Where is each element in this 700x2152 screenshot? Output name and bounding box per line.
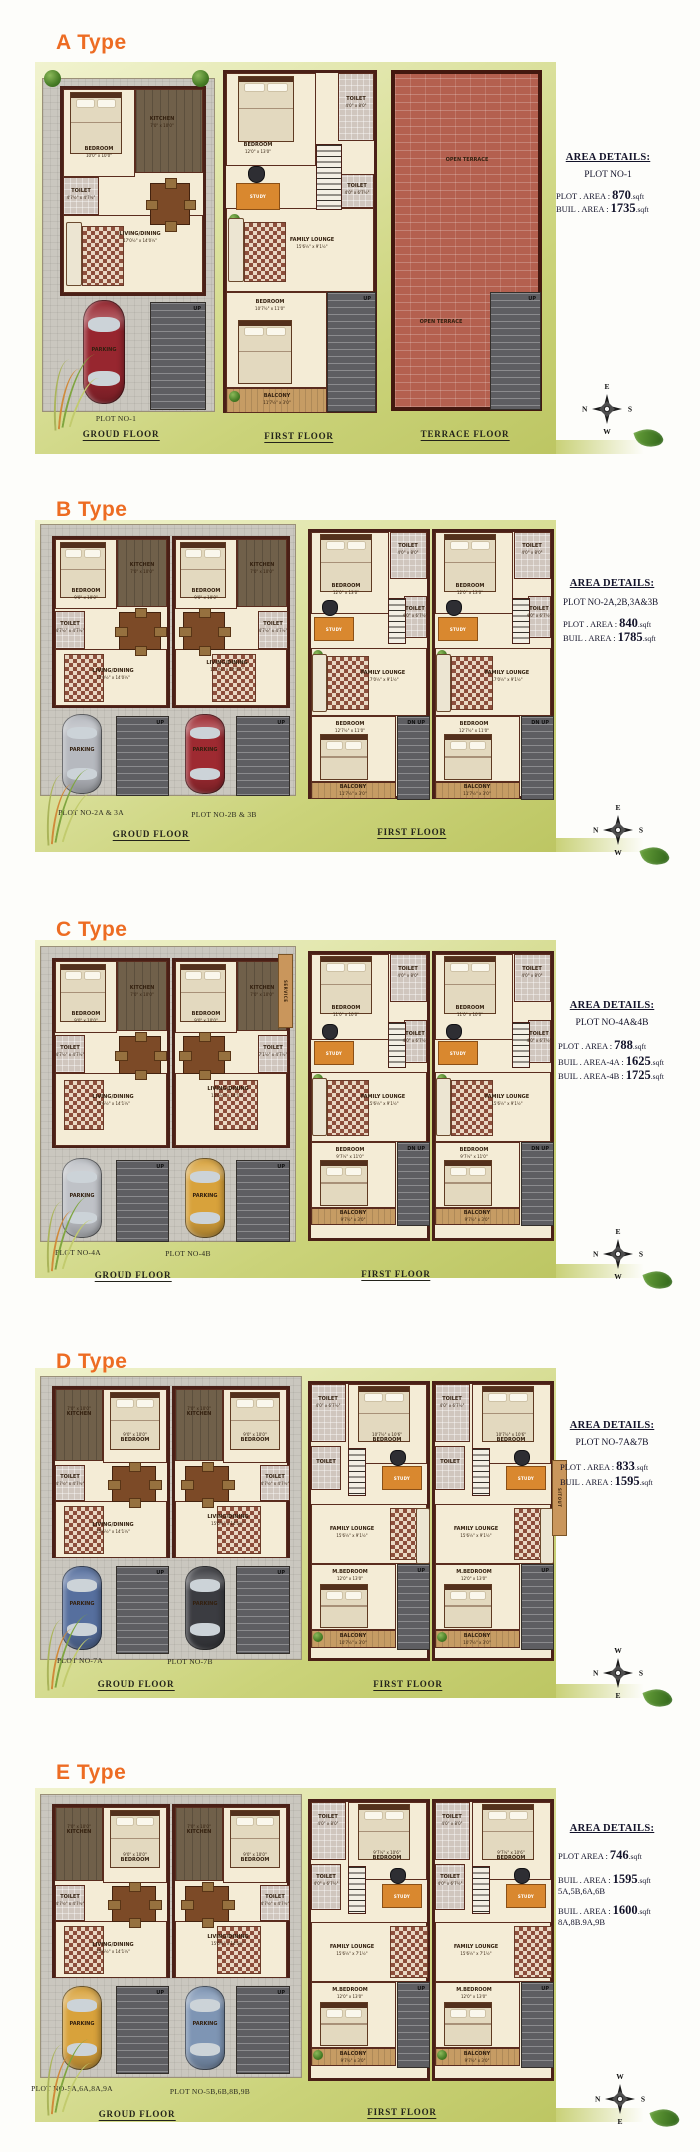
stairs-direction-label: UP — [277, 1570, 285, 1576]
room-name: BEDROOM — [241, 1437, 270, 1444]
room-name: LIVING/DINING — [92, 1942, 133, 1949]
headboard — [321, 535, 371, 540]
pillow — [346, 1168, 362, 1175]
stair-core-icon — [388, 598, 406, 644]
room-dimensions: 9'0" x 10'0" — [72, 595, 101, 600]
sofa-icon — [436, 1078, 451, 1136]
stairs-icon: DN UP — [521, 1142, 554, 1226]
stairs-direction-label: UP — [156, 1990, 164, 1996]
area-row-label: BUIL . AREA : — [558, 1875, 611, 1885]
d-type-title: D Type — [56, 1350, 127, 1374]
stairs-direction-label: UP — [541, 1568, 549, 1574]
blanket-fold — [321, 2023, 367, 2025]
plant-icon — [437, 1632, 447, 1642]
room-dimensions: 4'7½" x 4'7½" — [56, 1052, 85, 1057]
plant-icon — [313, 1632, 323, 1642]
a-type-first-floor-label: FIRST FLOOR — [264, 431, 333, 443]
chair-icon — [165, 178, 177, 189]
living-dining-label: LIVING/DINING17'0½" x 14'0½" — [206, 660, 247, 672]
rug-icon — [244, 222, 286, 282]
e-type-first-floor-label: FIRST FLOOR — [367, 2107, 436, 2119]
room-dimensions: 7'1½" x 4'7½" — [259, 1052, 288, 1057]
stairs-icon: UP — [397, 1982, 430, 2068]
blanket-fold — [445, 1182, 491, 1184]
toilet-label: TOILET4'0" x 6'7½" — [403, 1031, 428, 1043]
headboard — [321, 735, 367, 740]
dining-table-icon — [112, 1886, 156, 1922]
pillow — [186, 972, 201, 979]
stairs-icon: UP — [116, 1566, 169, 1654]
compass-t: E — [615, 1227, 620, 1236]
floor-plan-brochure: A TypeBEDROOM10'0" x 10'0"KITCHEN7'0" x … — [0, 0, 700, 2152]
room-name: OPEN TERRACE — [446, 157, 489, 164]
compass-t: E — [615, 803, 620, 812]
toilet — [514, 954, 551, 1002]
area-row-label: PLOT . AREA : — [556, 191, 610, 201]
pillow — [472, 542, 489, 549]
stairs-direction-label: UP — [277, 720, 285, 726]
stairs-direction-label: DN UP — [531, 720, 549, 726]
room-name: LIVING/DINING — [119, 231, 160, 238]
room-name: BALCONY — [339, 1633, 366, 1640]
blanket-fold — [239, 108, 293, 110]
room-dimensions: 4'0" x 8'0" — [346, 103, 367, 108]
parking-label: PARKING — [193, 2021, 218, 2028]
room-dimensions: 4'7½" x 4'7½" — [56, 628, 85, 633]
d-type-first-floor-label: FIRST FLOOR — [373, 1679, 442, 1691]
dining-table-icon — [185, 1466, 229, 1502]
m-bedroom-label: M.BEDROOM12'0" x 13'0" — [456, 1569, 492, 1581]
room-name: PARKING — [193, 2021, 218, 2028]
pillow — [365, 1812, 382, 1819]
pillow — [472, 964, 489, 971]
pillow — [257, 1818, 273, 1825]
area-row-value: 1735 — [611, 201, 636, 215]
stairs-icon: UP — [490, 292, 541, 410]
chair-icon — [181, 1900, 194, 1909]
compass-l: N — [595, 2095, 600, 2104]
room-dimensions: 15'6½" x 9'1½" — [361, 1101, 405, 1106]
room-name: FAMILY LOUNGE — [330, 1526, 374, 1533]
toilet-label: TOILET4'7½" x 4'7½" — [67, 188, 96, 200]
chair-icon — [179, 1051, 191, 1061]
c-type-plot-no-4b-label: PLOT NO-4B — [165, 1249, 211, 1258]
room-name: BEDROOM — [241, 1857, 270, 1864]
plant-icon — [229, 391, 240, 402]
stairs-icon: UP — [327, 292, 376, 412]
headboard — [111, 1393, 159, 1398]
room-name: PARKING — [193, 1193, 218, 1200]
study-label: STUDY — [383, 1467, 421, 1489]
room-dimensions: 9'7½" x 3'0" — [340, 2058, 367, 2063]
pillow — [386, 1812, 403, 1819]
room-name: PARKING — [193, 747, 218, 754]
stair-core-icon — [472, 1448, 490, 1496]
chair-icon — [129, 1882, 142, 1891]
stairs-direction-label: UP — [156, 720, 164, 726]
room-dimensions: 4'0" x 6'7½" — [440, 1403, 465, 1408]
stairs-direction-label: UP — [277, 1990, 285, 1996]
room-name: LIVING/DINING — [207, 1514, 248, 1521]
study-label: STUDY — [237, 184, 279, 209]
room-name: PARKING — [92, 347, 117, 354]
headboard — [71, 93, 121, 98]
headboard — [321, 1161, 367, 1166]
room-name: BEDROOM — [121, 1857, 150, 1864]
room-dimensions: 17'0½" x 14'0½" — [206, 667, 247, 672]
chair-icon — [222, 1900, 235, 1909]
b-type-first-floor-label: FIRST FLOOR — [377, 827, 446, 839]
room-name: TOILET — [440, 1396, 465, 1403]
chair-icon — [154, 627, 166, 637]
room-dimensions: 15'6½" x 7'1½" — [454, 1951, 498, 1956]
room-name: M.BEDROOM — [332, 1987, 368, 1994]
compass-rose-icon: ESWN — [582, 384, 632, 434]
kitchen-label: KITCHEN7'0" x 10'0" — [250, 562, 275, 574]
family-lounge-label: FAMILY LOUNGE15'6½" x 9'1½" — [485, 1094, 529, 1106]
living-dining-label: LIVING/DINING15'6½" x 14'1½" — [92, 1522, 133, 1534]
room-dimensions: 17'0½" x 14'0½" — [119, 238, 160, 243]
room-name: PARKING — [70, 1601, 95, 1608]
chair-icon — [202, 1462, 215, 1471]
study-label: STUDY — [383, 1885, 421, 1907]
area-row-value: 788 — [614, 1038, 633, 1052]
toilet-label: TOILET4'7½" x 4'7½" — [56, 1045, 85, 1057]
room-dimensions: 11'0" x 10'0" — [456, 1012, 485, 1017]
room-name: FAMILY LOUNGE — [361, 670, 405, 677]
chair-icon — [108, 1480, 121, 1489]
sofa-icon — [416, 1508, 430, 1564]
blanket-fold — [445, 562, 495, 564]
pillow — [137, 1400, 153, 1407]
blanket-fold — [321, 1605, 367, 1607]
stairs-icon: UP — [397, 1564, 430, 1650]
room-name: LIVING/DINING — [206, 660, 247, 667]
room-dimensions: 11'7½" x 3'0" — [463, 791, 490, 796]
room-name: TOILET — [314, 1874, 339, 1881]
e-type-area-note: 8A,8B.9A,9B — [558, 1917, 605, 1927]
m-bedroom-label: M.BEDROOM12'0" x 13'0" — [332, 1987, 368, 1999]
area-row-value: 1625 — [626, 1054, 651, 1068]
family-lounge-label: FAMILY LOUNGE15'6½" x 9'1½" — [454, 1526, 498, 1538]
area-row-unit: .sqft — [636, 205, 649, 214]
toilet — [514, 532, 551, 579]
room-name: PARKING — [193, 1601, 218, 1608]
blanket-fold — [321, 1182, 367, 1184]
compass-b: W — [614, 848, 622, 857]
bedroom-label: 9'7½" x 10'6"BEDROOM — [373, 1850, 402, 1862]
stairs-direction-label: UP — [417, 1568, 425, 1574]
blanket-fold — [239, 351, 291, 353]
open-terrace-label: OPEN TERRACE — [446, 157, 489, 164]
tree-icon — [192, 70, 209, 87]
windshield — [88, 317, 120, 333]
room-name: KITCHEN — [187, 1829, 212, 1836]
room-name: BALCONY — [340, 1210, 367, 1217]
m-bedroom-label: M.BEDROOM12'0" x 13'0" — [456, 1987, 492, 1999]
area-row-unit: .sqft — [638, 620, 651, 629]
stairs-direction-label: UP — [277, 1164, 285, 1170]
toilet-label: TOILET4'7½" x 4'7½" — [56, 1474, 85, 1486]
room-dimensions: 9'0" x 10'0" — [192, 595, 221, 600]
car-icon — [185, 1566, 225, 1650]
family-lounge-label: FAMILY LOUNGE17'0½" x 9'1½" — [485, 670, 529, 682]
room-dimensions: 4'0" x 6'7½" — [314, 1881, 339, 1886]
room-name: FAMILY LOUNGE — [485, 670, 529, 677]
toilet — [435, 1802, 470, 1860]
c-type-area-details-heading: AREA DETAILS: — [570, 1000, 655, 1011]
room-name: PARKING — [70, 1193, 95, 1200]
blanket-fold — [321, 984, 371, 986]
kitchen — [175, 1389, 223, 1461]
d-type-area-row: PLOT . AREA :833.sqft — [560, 1459, 648, 1474]
compass-r: S — [641, 2095, 645, 2104]
room-dimensions: 9'7½" x 11'0" — [336, 1154, 365, 1159]
room-name: PARKING — [70, 747, 95, 754]
a-type-title: A Type — [56, 31, 127, 55]
stairs-direction-label: UP — [193, 306, 201, 312]
room-name: BEDROOM — [456, 583, 485, 590]
study-desk-icon: STUDY — [382, 1884, 422, 1908]
room-name: LIVING/DINING — [207, 1934, 248, 1941]
rear-window — [190, 2043, 220, 2056]
d-type-plot-no-line: PLOT NO-7A&7B — [576, 1438, 649, 1448]
compass-b: W — [614, 1272, 622, 1281]
compass-l: N — [582, 405, 587, 414]
room-dimensions: 15'6½" x 7'1½" — [330, 1951, 374, 1956]
m-bedroom-label: M.BEDROOM12'0" x 13'0" — [332, 1569, 368, 1581]
chair-icon — [135, 608, 147, 618]
area-row-label: PLOT . AREA : — [558, 1041, 612, 1051]
room-dimensions: 10'7½" x 3'0" — [339, 1640, 366, 1645]
windshield — [190, 1579, 220, 1592]
stairs-icon: DN UP — [397, 1142, 430, 1226]
room-dimensions: 4'0" x 8'0" — [398, 973, 419, 978]
pillow — [489, 1812, 506, 1819]
e-type-area-row: PLOT AREA :746.sqft — [558, 1848, 642, 1863]
pillow — [77, 100, 94, 107]
room-name: BEDROOM — [372, 1437, 402, 1444]
room-name: TOILET — [316, 1396, 341, 1403]
chair-icon — [146, 200, 158, 211]
pillow — [346, 2010, 362, 2017]
compass-r: S — [628, 405, 632, 414]
stair-core-icon — [388, 1022, 406, 1068]
pillow — [470, 2010, 486, 2017]
bed-icon — [320, 2002, 368, 2046]
parking-label: PARKING — [193, 747, 218, 754]
d-type-area-row: BUIL . AREA :1595.sqft — [560, 1474, 653, 1489]
room-dimensions: 10'0" x 10'0" — [85, 153, 114, 158]
room-dimensions: 4'7½" x 4'7½" — [261, 1481, 290, 1486]
pillow — [137, 1818, 153, 1825]
chair-icon — [108, 1900, 121, 1909]
rug-icon — [327, 1080, 369, 1136]
a-type-terrace-floor-label: TERRACE FLOOR — [421, 429, 510, 441]
pillow — [237, 1818, 253, 1825]
bedroom-label: BEDROOM12'0" x 13'0" — [244, 142, 273, 154]
parking-label: PARKING — [70, 2021, 95, 2028]
pillow — [346, 742, 362, 749]
room-dimensions: 12'0" x 13'0" — [456, 590, 485, 595]
toilet — [390, 532, 427, 579]
rug-icon — [327, 656, 369, 710]
pillow — [85, 550, 100, 557]
toilet-label: TOILET4'0" x 8'0" — [398, 966, 419, 978]
toilet — [435, 1384, 470, 1442]
grass-decoration-icon — [45, 765, 95, 845]
balcony-label: BALCONY11'7½" x 3'0" — [339, 784, 366, 796]
kitchen-label: KITCHEN7'0" x 10'0" — [130, 562, 155, 574]
area-row-unit: .sqft — [638, 1876, 651, 1885]
stair-core-icon — [512, 598, 530, 644]
room-dimensions: 9'0" x 10'0" — [72, 1018, 101, 1023]
room-name: TOILET — [398, 966, 419, 973]
room-name: KITCHEN — [130, 985, 155, 992]
study-desk-icon: STUDY — [314, 1041, 354, 1065]
headboard — [445, 1161, 491, 1166]
toilet — [311, 1864, 341, 1910]
rug-icon — [514, 1926, 552, 1978]
headboard — [321, 2003, 367, 2008]
windshield — [67, 727, 97, 739]
compass-rose-icon: WSEN — [595, 2074, 645, 2124]
room-name: LIVING/DINING — [92, 1522, 133, 1529]
sofa-icon — [436, 654, 451, 712]
toilet-label: TOILET4'7½" x 4'7½" — [56, 621, 85, 633]
chair-icon — [179, 627, 191, 637]
bed-icon — [444, 2002, 492, 2046]
c-type-first-floor-label: FIRST FLOOR — [361, 1269, 430, 1281]
stairs-icon: UP — [116, 716, 169, 796]
room-name: BALCONY — [263, 393, 290, 400]
toilet-label: TOILET4'0" x 8'0" — [398, 543, 419, 555]
bedroom-label: BEDROOM9'7½" x 11'0" — [336, 1147, 365, 1159]
car-icon — [185, 714, 225, 794]
d-type-area-details-heading: AREA DETAILS: — [570, 1420, 655, 1431]
b-type-area-note: PLOT NO-2A,2B,3A&3B — [563, 597, 658, 607]
kitchen-label: 7'0" x 10'0"KITCHEN — [187, 1406, 212, 1418]
headboard — [445, 1585, 491, 1590]
area-row-unit: .sqft — [651, 1072, 664, 1081]
service-label: SERVICE — [279, 955, 292, 1027]
chair-icon — [154, 1051, 166, 1061]
blanket-fold — [321, 562, 371, 564]
c-type-area-row: BUIL . AREA-4A :1625.sqft — [558, 1054, 664, 1069]
room-dimensions: 15'6½" x 14'1½" — [92, 1101, 133, 1106]
bedroom-label: BEDROOM10'0" x 10'0" — [85, 146, 114, 158]
toilet-label: TOILET4'0" x 6'7½" — [440, 1396, 465, 1408]
balcony-label: BALCONY9'7½" x 3'0" — [464, 2051, 491, 2063]
stairs-icon: UP — [236, 1986, 290, 2074]
chair-icon — [202, 1918, 215, 1927]
room-name: BEDROOM — [336, 1147, 365, 1154]
toilet — [311, 1446, 341, 1490]
toilet-label: TOILET4'0" x 8'0" — [346, 96, 367, 108]
room-name: TOILET — [440, 1459, 460, 1466]
kitchen-label: KITCHEN7'0" x 10'0" — [150, 116, 175, 128]
area-row-label: BUIL . AREA-4B : — [558, 1071, 624, 1081]
room-name: FAMILY LOUNGE — [290, 237, 334, 244]
sofa-icon — [312, 1078, 327, 1136]
room-name: BEDROOM — [121, 1437, 150, 1444]
room-dimensions: 9'7½" x 3'0" — [464, 2058, 491, 2063]
pillow — [327, 1168, 343, 1175]
area-row-value: 1785 — [618, 630, 643, 644]
bed-icon — [70, 92, 122, 154]
bedroom-label: BEDROOM11'0" x 10'0" — [332, 1005, 361, 1017]
compass-l: N — [593, 1669, 598, 1678]
room-dimensions: 7'0" x 10'0" — [250, 569, 275, 574]
room-name: BEDROOM — [459, 721, 489, 728]
room-dimensions: 9'7½" x 3'0" — [340, 1217, 367, 1222]
pillow — [85, 972, 100, 979]
pillow — [327, 1592, 343, 1599]
kitchen — [55, 1389, 103, 1461]
compass-b: E — [617, 2117, 622, 2126]
headboard — [445, 535, 495, 540]
room-name: BALCONY — [340, 2051, 367, 2058]
dining-table-icon — [119, 612, 161, 650]
chair-icon — [202, 1498, 215, 1507]
bedroom-label: BEDROOM11'0" x 10'0" — [456, 1005, 485, 1017]
room-name: LIVING/DINING — [207, 1086, 248, 1093]
bed-icon — [238, 76, 294, 142]
room-name: KITCHEN — [67, 1411, 92, 1418]
room-name: TOILET — [316, 1459, 336, 1466]
study-desk-icon: STUDY — [506, 1884, 546, 1908]
chair-icon — [115, 627, 127, 637]
pillow — [245, 84, 263, 91]
area-row-value: 833 — [616, 1459, 635, 1473]
pillow — [327, 742, 343, 749]
study-desk-icon: STUDY — [236, 183, 280, 210]
blanket-fold — [61, 569, 105, 571]
toilet-label: TOILET4'7½" x 4'7½" — [259, 621, 288, 633]
pillow — [66, 972, 81, 979]
chair-icon — [184, 200, 196, 211]
chair-icon — [218, 627, 230, 637]
pillow — [451, 742, 467, 749]
b-type-title: B Type — [56, 498, 127, 522]
pillow — [510, 1812, 527, 1819]
c-type-area-row: BUIL . AREA-4B :1725.sqft — [558, 1068, 664, 1083]
parking-label: PARKING — [70, 747, 95, 754]
stair-core-icon — [316, 144, 342, 210]
stairs-direction-label: UP — [541, 1986, 549, 1992]
room-dimensions: 10'7½" x 11'0" — [255, 306, 285, 311]
study-desk-icon: STUDY — [438, 1041, 478, 1065]
pillow — [365, 1394, 382, 1401]
headboard — [61, 543, 105, 548]
blanket-fold — [359, 1413, 409, 1415]
a-type-area-details-heading: AREA DETAILS: — [566, 152, 651, 163]
room-name: KITCHEN — [250, 562, 275, 569]
stairs-icon: UP — [236, 1160, 290, 1242]
room-name: OPEN TERRACE — [420, 319, 463, 326]
blanket-fold — [181, 992, 225, 994]
e-type-area-details-heading: AREA DETAILS: — [570, 1823, 655, 1834]
bedroom-label: BEDROOM9'7½" x 11'0" — [460, 1147, 489, 1159]
study-label: STUDY — [439, 1042, 477, 1064]
bedroom-label: 10'7½" x 10'6"BEDROOM — [372, 1432, 402, 1444]
family-lounge-label: FAMILY LOUNGE17'0½" x 9'1½" — [361, 670, 405, 682]
toilet — [311, 1384, 346, 1442]
room-dimensions: 15'6½" x 14'1½" — [92, 1949, 133, 1954]
blanket-fold — [181, 569, 225, 571]
room-dimensions: 4'7½" x 4'7½" — [67, 195, 96, 200]
study-label: STUDY — [507, 1467, 545, 1489]
